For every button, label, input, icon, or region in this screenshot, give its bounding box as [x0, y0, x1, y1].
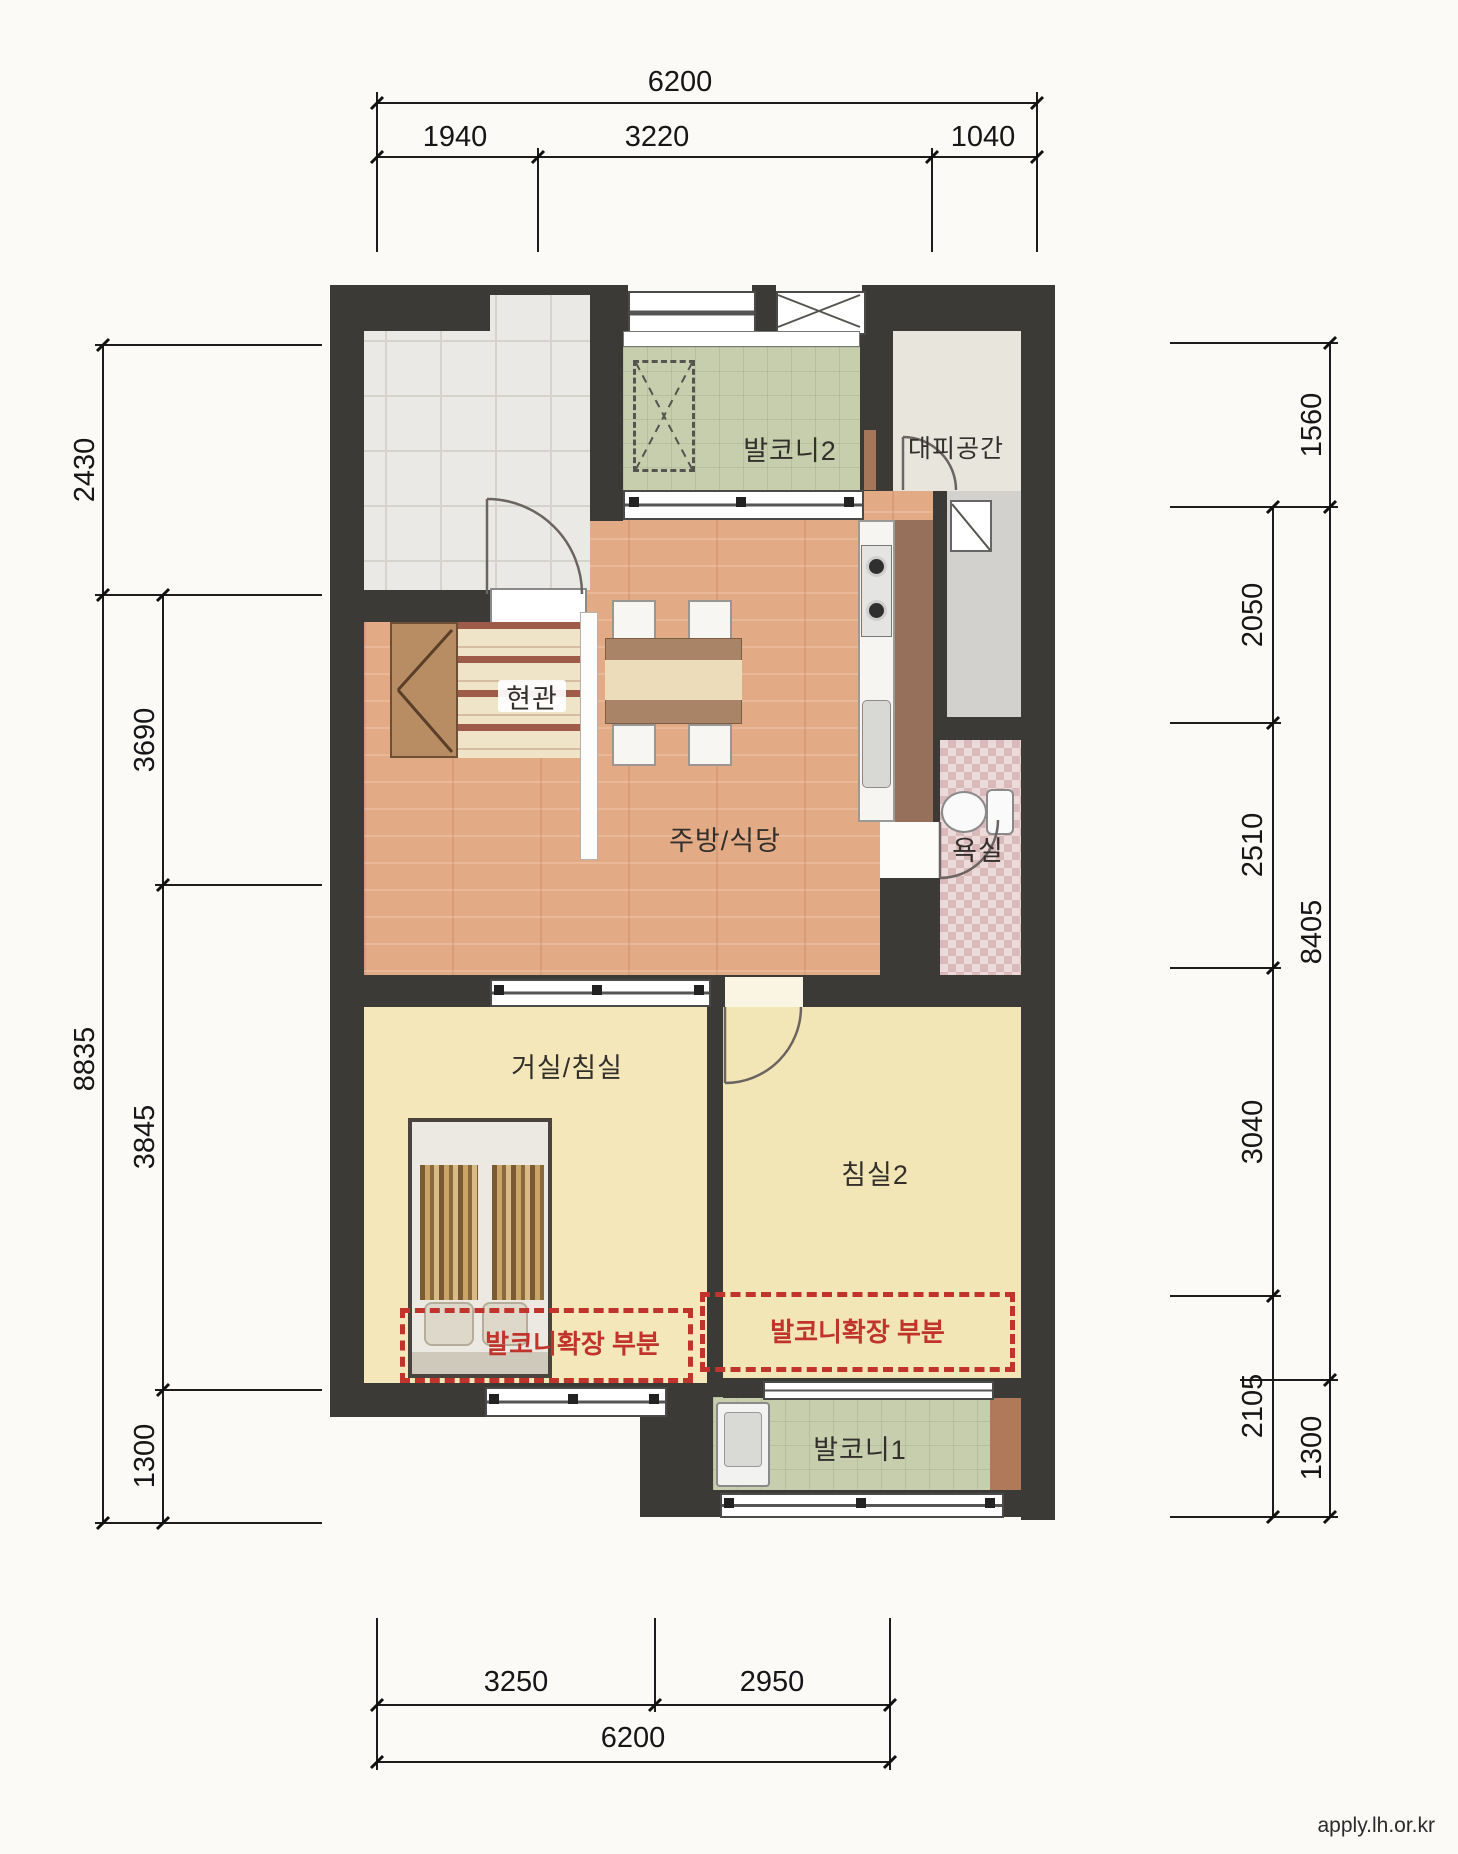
room-label-entrance: 현관 [498, 680, 566, 712]
room-label-balcony2: 발코니2 [720, 433, 860, 463]
dim-left-outer-2430: 2430 [69, 410, 101, 530]
dim-top-seg2: 3220 [597, 121, 717, 153]
dim-right-inner-2105: 2105 [1237, 1346, 1269, 1466]
dim-right-inner-2050: 2050 [1237, 555, 1269, 675]
label-balcony-extension-left: 발코니확장 부분 [455, 1327, 690, 1357]
dim-right-inner-3040: 3040 [1237, 1072, 1269, 1192]
room-label-balcony1: 발코니1 [790, 1432, 930, 1462]
dim-left-inner-3690: 3690 [129, 680, 161, 800]
room-label-refuge: 대피공간 [893, 432, 1019, 462]
dim-right-outer-1560: 1560 [1296, 365, 1328, 485]
room-label-bedroom2: 침실2 [800, 1157, 950, 1187]
dim-right-outer-1300: 1300 [1296, 1388, 1328, 1508]
room-label-bathroom: 욕실 [935, 833, 1021, 863]
label-balcony-extension-right: 발코니확장 부분 [740, 1315, 975, 1345]
dim-left-inner-3845: 3845 [129, 1077, 161, 1197]
dim-bottom-seg1: 3250 [456, 1666, 576, 1698]
dim-top-total: 6200 [620, 66, 740, 98]
dim-top-seg1: 1940 [395, 121, 515, 153]
dimension-and-symbol-overlay [0, 0, 1458, 1854]
dim-bottom-total: 6200 [573, 1722, 693, 1754]
dim-right-outer-8405: 8405 [1296, 872, 1328, 992]
dim-right-inner-2510: 2510 [1237, 785, 1269, 905]
room-label-kitchen-dining: 주방/식당 [640, 823, 810, 853]
dim-left-outer-8835: 8835 [69, 999, 101, 1119]
dim-bottom-seg2: 2950 [712, 1666, 832, 1698]
dim-top-seg3: 1040 [923, 121, 1043, 153]
room-label-living-bedroom: 거실/침실 [477, 1050, 657, 1080]
floor-plan-page: 발코니2 대피공간 현관 주방/식당 욕실 거실/침실 침실2 발코니확장 부분… [0, 0, 1458, 1854]
dim-left-inner-1300: 1300 [129, 1396, 161, 1516]
footer-url: apply.lh.or.kr [1225, 1814, 1435, 1838]
